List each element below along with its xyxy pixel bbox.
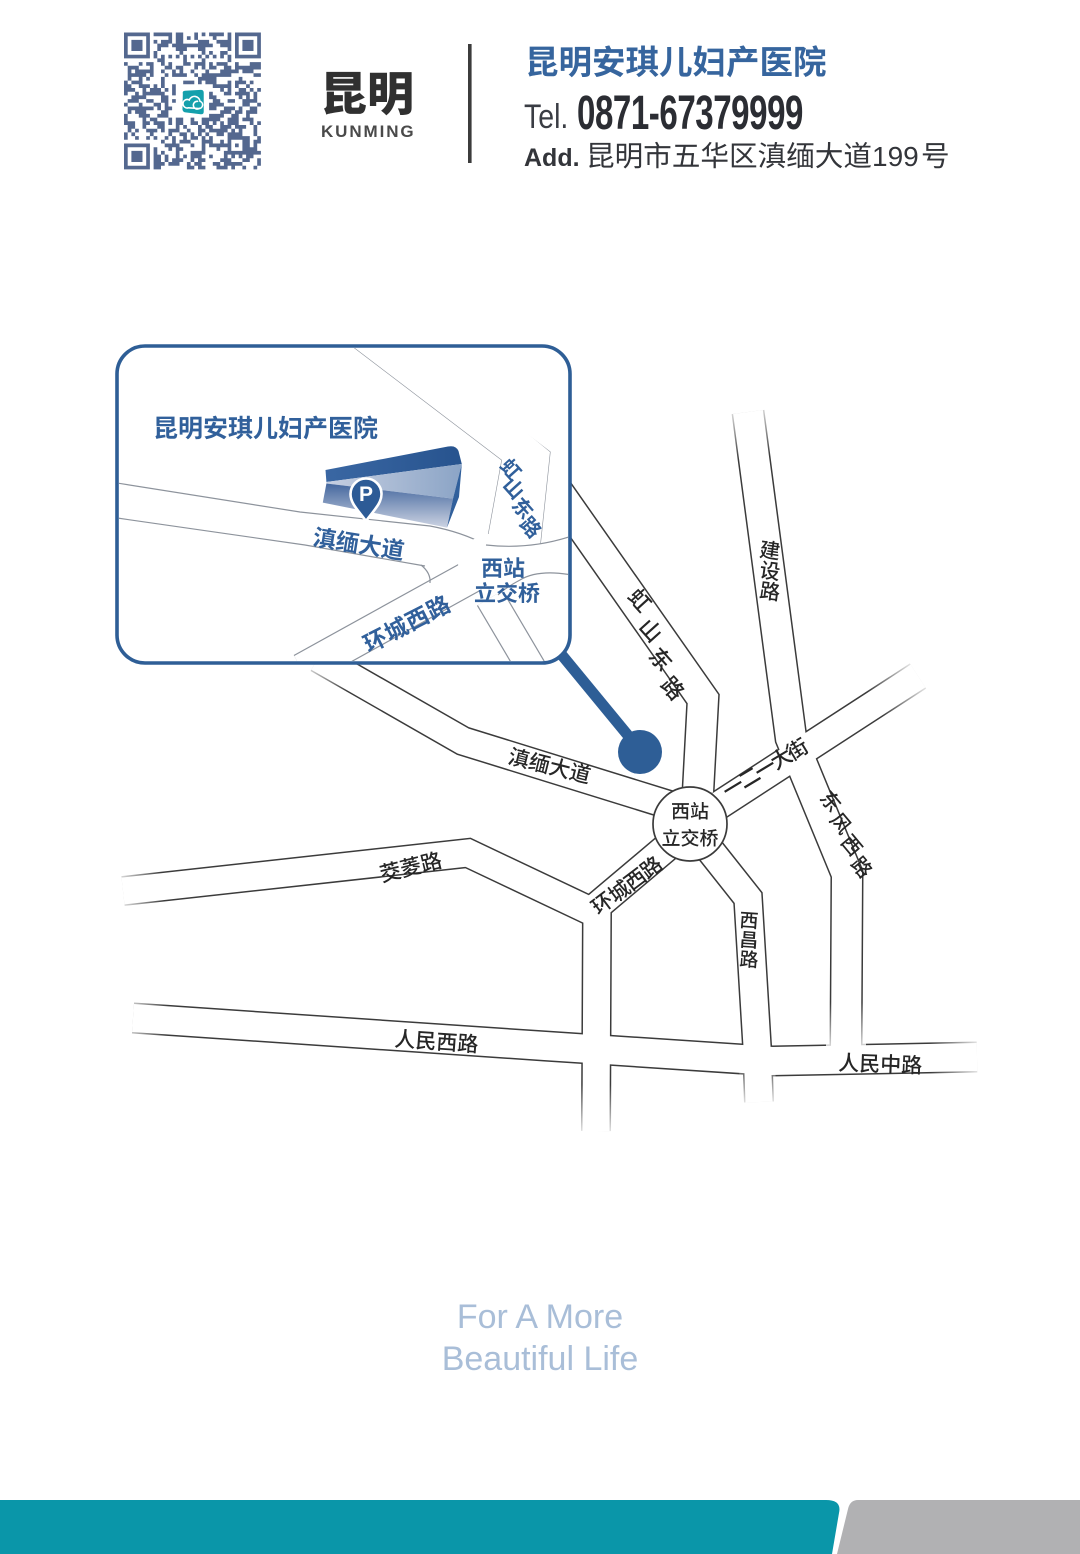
svg-text:Add.: Add.	[524, 144, 580, 172]
svg-text:For A More: For A More	[457, 1298, 623, 1336]
svg-text:Beautiful Life: Beautiful Life	[442, 1340, 639, 1378]
svg-text:0871-67379999: 0871-67379999	[577, 86, 803, 140]
svg-text:Tel.: Tel.	[524, 96, 568, 135]
svg-text:P: P	[359, 483, 373, 506]
svg-text:KUNMING: KUNMING	[321, 122, 416, 141]
svg-text:199: 199	[872, 141, 919, 172]
